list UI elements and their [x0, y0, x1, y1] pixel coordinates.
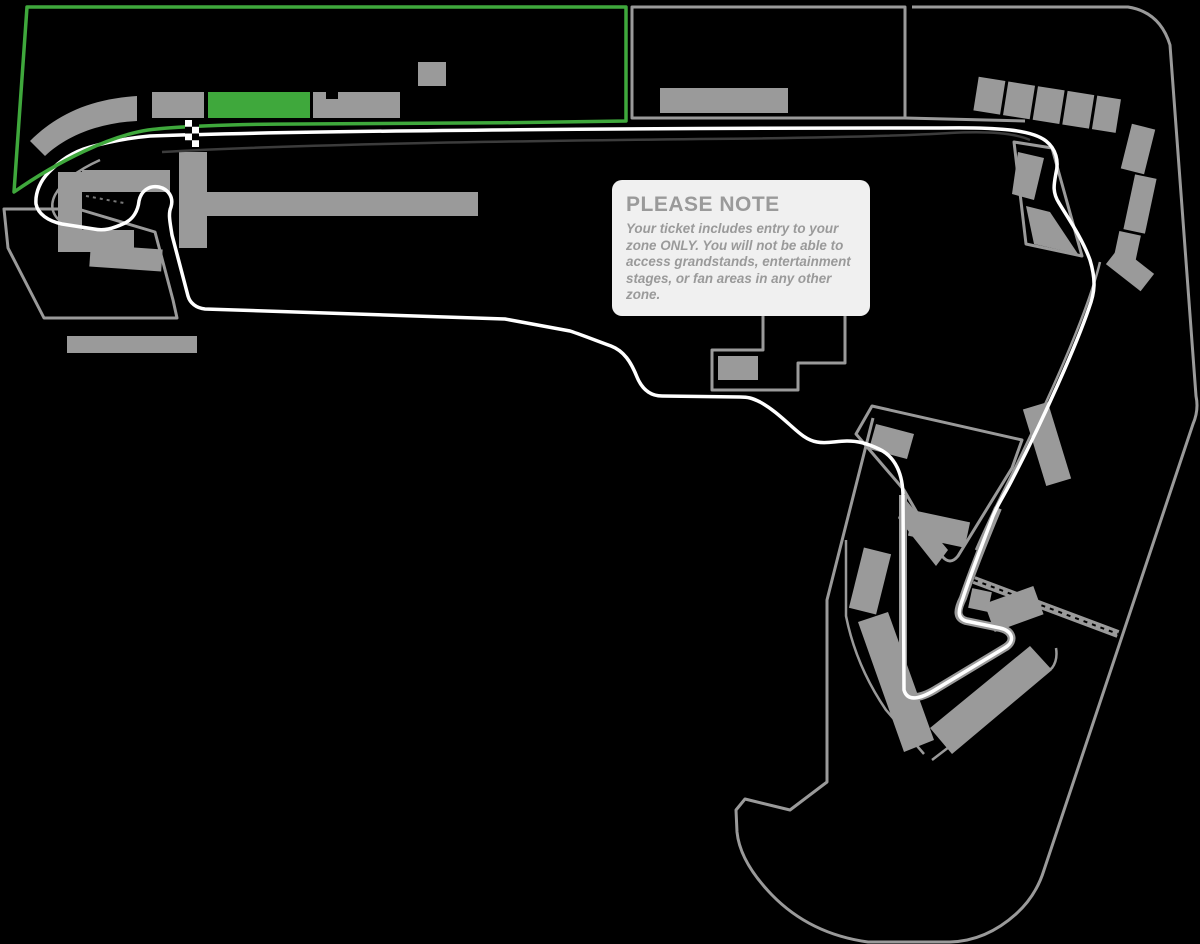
grandstand-green-zone [208, 92, 310, 118]
grandstand [82, 170, 170, 192]
zone-outlines [4, 7, 1197, 942]
grandstand [179, 152, 207, 248]
start-finish-flag-icon [185, 120, 199, 147]
grandstand [1123, 174, 1156, 233]
grandstands [30, 62, 1157, 754]
building-block [718, 356, 758, 380]
pit-lane-line [162, 132, 1030, 152]
stadium-grandstand [849, 548, 891, 615]
pit-entry-dash [86, 196, 124, 203]
grandstand [660, 88, 788, 113]
grandstand [58, 172, 82, 252]
pit-building [196, 192, 478, 216]
grandstand-arc [30, 96, 137, 156]
building [418, 62, 446, 86]
zone-divider [905, 118, 1025, 121]
stadium-grandstand [869, 424, 914, 459]
note-body: Your ticket includes entry to your zone … [626, 221, 868, 304]
grandstand [89, 245, 162, 272]
grandstand [152, 92, 204, 118]
note-title: PLEASE NOTE [626, 193, 858, 217]
stadium-grandstand [930, 646, 1052, 754]
note-box: PLEASE NOTE Your ticket includes entry t… [612, 180, 870, 316]
grandstand [1121, 124, 1155, 174]
circuit-map-svg [0, 0, 1200, 944]
grandstand [67, 336, 197, 353]
grandstand-strip [973, 77, 1121, 133]
circuit-zone-map: PLEASE NOTE Your ticket includes entry t… [0, 0, 1200, 944]
grandstand [313, 92, 400, 118]
